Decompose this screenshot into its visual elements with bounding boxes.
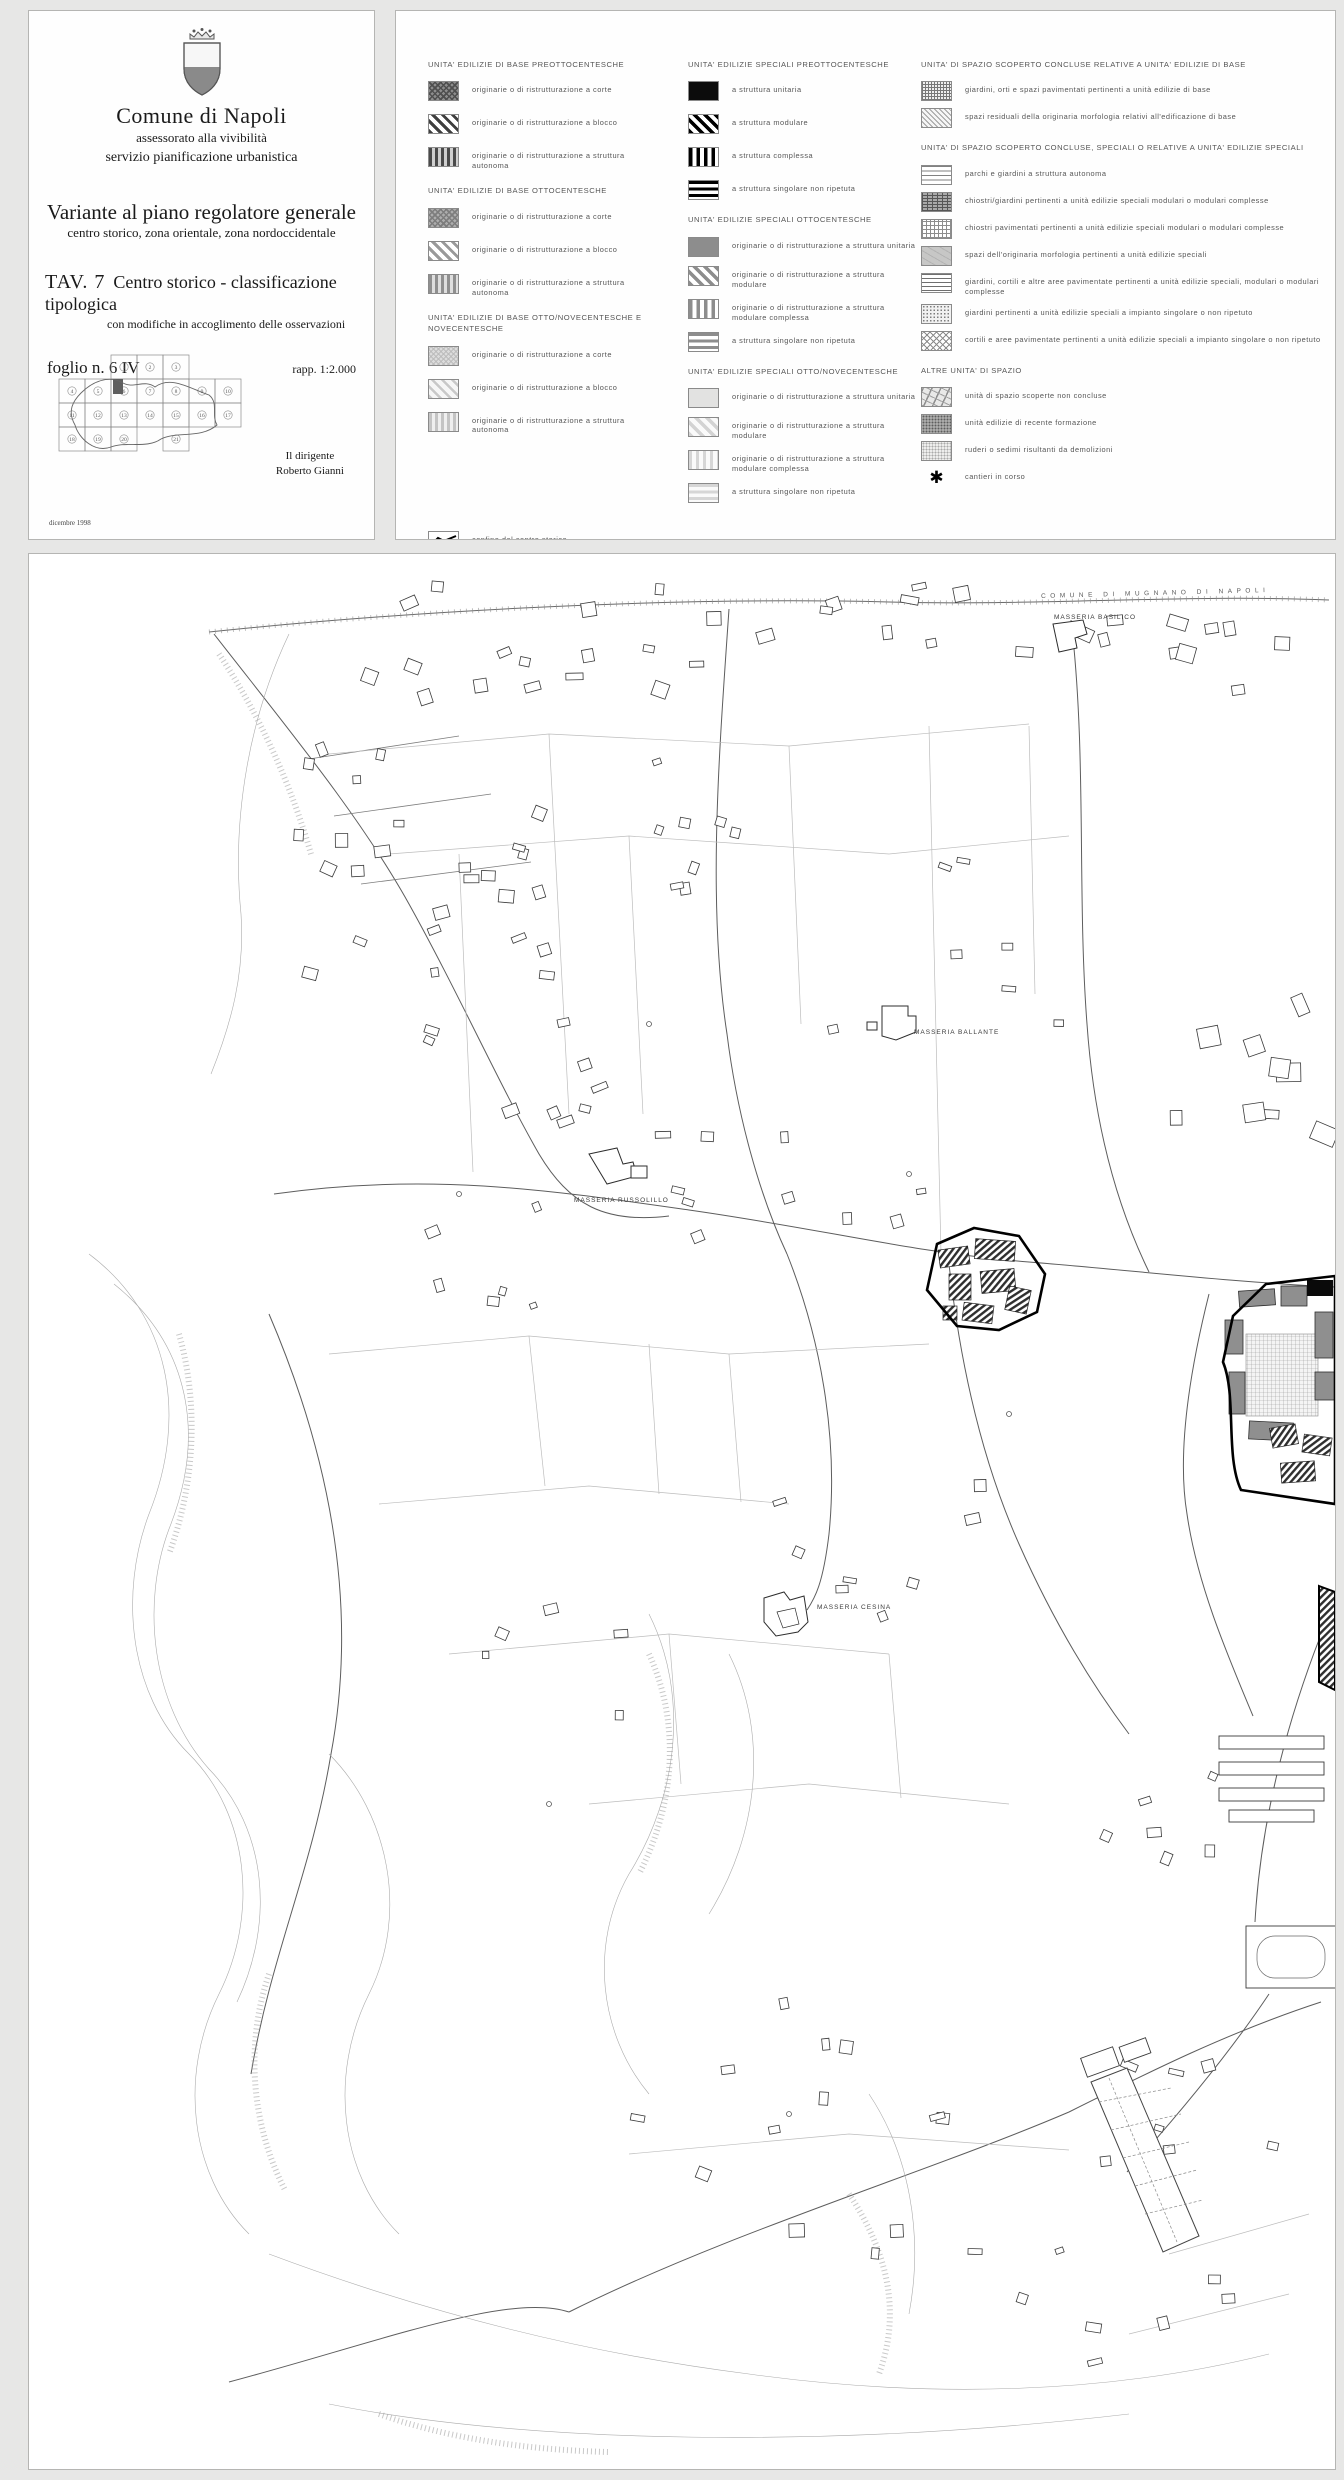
- legend-item-label: cortili e aree pavimentate pertinenti a …: [965, 331, 1321, 345]
- legend-item: cortili e aree pavimentate pertinenti a …: [921, 331, 1321, 351]
- title-block-panel: Comune di Napoli assessorato alla vivibi…: [28, 10, 375, 540]
- svg-text:18: 18: [69, 437, 75, 443]
- roads: [214, 609, 1335, 2382]
- legend-swatch-solid-black: [688, 81, 719, 101]
- legend-swatch-hb-lgray: [688, 483, 719, 503]
- construction-corridor: [1081, 2038, 1203, 2252]
- legend-item-label: cantieri in corso: [965, 468, 1025, 482]
- svg-text:13: 13: [121, 413, 127, 419]
- legend-item: originarie o di ristrutturazione a corte: [428, 208, 663, 228]
- index-sheet-cell-4: 4: [59, 379, 85, 403]
- legend-swatch-hb-black: [688, 180, 719, 200]
- index-sheet-cell-12: 12: [85, 403, 111, 427]
- legend-item: ruderi o sedimi risultanti da demolizion…: [921, 441, 1321, 461]
- index-highlighted-sheet: [113, 379, 123, 394]
- legend-item-label: originarie o di ristrutturazione a strut…: [732, 266, 916, 290]
- legend-swatch-gray-noise: [921, 246, 952, 266]
- barracks-rows: [1219, 1736, 1324, 1822]
- svg-text:3: 3: [175, 365, 178, 371]
- legend-swatch-dots-dense: [921, 414, 952, 434]
- legend-swatch-vb-black: [688, 147, 719, 167]
- signature-role: Il dirigente: [276, 449, 344, 464]
- legend-item-label: a struttura singolare non ripetuta: [732, 483, 855, 497]
- legend-item: a struttura singolare non ripetuta: [688, 332, 916, 352]
- svg-text:12: 12: [95, 413, 101, 419]
- legend-item-label: originarie o di ristrutturazione a blocc…: [472, 114, 617, 128]
- index-sheet-cell-7: 7: [137, 379, 163, 403]
- svg-text:19: 19: [95, 437, 101, 443]
- contour-lines: [89, 634, 1269, 2437]
- legend-item: originarie o di ristrutturazione a blocc…: [428, 241, 663, 261]
- legend-column-open-space-units: UNITA' DI SPAZIO SCOPERTO CONCLUSE RELAT…: [921, 59, 1321, 502]
- signature-block: Il dirigente Roberto Gianni: [276, 449, 344, 479]
- legend-item-label: giardini pertinenti a unità edilizie spe…: [965, 304, 1253, 318]
- legend-group-title: UNITA' DI SPAZIO SCOPERTO CONCLUSE RELAT…: [921, 59, 1321, 70]
- index-sheet-cell-2: 2: [137, 355, 163, 379]
- legend-item: originarie o di ristrutturazione a strut…: [688, 450, 916, 474]
- legend-item-label: originarie o di ristrutturazione a strut…: [732, 450, 916, 474]
- legend-swatch-dg-dark: [428, 114, 459, 134]
- field-boundaries: [329, 724, 1309, 2334]
- legend-item-label: originarie o di ristrutturazione a corte: [472, 208, 612, 222]
- map-label-place: MASSERIA BASILICO: [1054, 614, 1136, 621]
- legend-item-label: unità di spazio scoperte non concluse: [965, 387, 1107, 401]
- legend-group-title: UNITA' EDILIZIE SPECIALI PREOTTOCENTESCH…: [688, 59, 916, 70]
- map-sheet: COMUNE DI MUGNANO DI NAPOLIMASSERIA BASI…: [28, 553, 1336, 2470]
- legend-group: UNITA' DI SPAZIO SCOPERTO CONCLUSE RELAT…: [921, 59, 1321, 128]
- legend-group-title: UNITA' EDILIZIE DI BASE OTTOCENTESCHE: [428, 185, 663, 196]
- svg-text:6: 6: [123, 389, 126, 395]
- legend-swatch-xh-mid: [428, 208, 459, 228]
- legend-item-label: giardini, cortili e altre aree pavimenta…: [965, 273, 1321, 297]
- historic-cluster-central: [927, 1228, 1045, 1330]
- legend-item-label: originarie o di ristrutturazione a strut…: [732, 237, 915, 251]
- svg-text:10: 10: [225, 389, 231, 395]
- sports-field: [1246, 1926, 1335, 1988]
- svg-text:21: 21: [173, 437, 179, 443]
- org-name: Comune di Napoli: [29, 103, 374, 129]
- legend-item-label: originarie o di ristrutturazione a strut…: [732, 299, 916, 323]
- index-sheet-cell-18: 18: [59, 427, 85, 451]
- historic-cluster-right: [1223, 1276, 1335, 1504]
- legend-item-label: parchi e giardini a struttura autonoma: [965, 165, 1106, 179]
- legend-item: originarie o di ristrutturazione a strut…: [688, 237, 916, 257]
- tav-note: con modifiche in accoglimento delle osse…: [107, 317, 374, 332]
- index-sheet-cell-9: 9: [189, 379, 215, 403]
- historic-boundary-swatch: [428, 531, 459, 540]
- sheet-index-map: 123456789101112131415161718192021: [51, 341, 251, 491]
- map-linework: [29, 554, 1335, 2469]
- legend-swatch-hl-open: [921, 165, 952, 185]
- legend-item: a struttura unitaria: [688, 81, 916, 101]
- index-sheet-cell-6: 6: [111, 379, 137, 403]
- legend-group-title: UNITA' DI SPAZIO SCOPERTO CONCLUSE, SPEC…: [921, 142, 1321, 153]
- municipal-boundary: [209, 598, 1329, 632]
- legend-item: unità edilizie di recente formazione: [921, 414, 1321, 434]
- legend-group: UNITA' EDILIZIE SPECIALI PREOTTOCENTESCH…: [688, 59, 916, 200]
- legend-group: confine del centro storico: [428, 531, 663, 540]
- legend-swatch-hl-dense: [921, 273, 952, 293]
- svg-text:8: 8: [175, 389, 178, 395]
- index-sheet-cell-15: 15: [163, 403, 189, 427]
- legend-swatch-dots-lat: [921, 304, 952, 324]
- legend-group: UNITA' DI SPAZIO SCOPERTO CONCLUSE, SPEC…: [921, 142, 1321, 350]
- index-sheet-cell-16: 16: [189, 403, 215, 427]
- legend-item: a struttura modulare: [688, 114, 916, 134]
- legend-item: spazi dell'originaria morfologia pertine…: [921, 246, 1321, 266]
- index-sheet-cell-17: 17: [215, 403, 241, 427]
- legend-group-title: UNITA' EDILIZIE SPECIALI OTTOCENTESCHE: [688, 214, 916, 225]
- legend-swatch-vb-gray: [688, 299, 719, 319]
- legend-swatch-dg-lgray: [688, 417, 719, 437]
- legend-swatch-dg-mid: [428, 241, 459, 261]
- legend-swatch-xh-dark: [428, 81, 459, 101]
- legend-item: originarie o di ristrutturazione a strut…: [688, 299, 916, 323]
- map-label-place: MASSERIA CESINA: [817, 1604, 891, 1611]
- index-sheet-cell-13: 13: [111, 403, 137, 427]
- legend-swatch-solid-gray: [688, 237, 719, 257]
- plan-title: Variante al piano regolatore generale: [29, 200, 374, 225]
- index-sheet-cell-14: 14: [137, 403, 163, 427]
- legend-swatch-dg-black: [688, 114, 719, 134]
- legend-item: a struttura singolare non ripetuta: [688, 180, 916, 200]
- org-department: assessorato alla vivibilità: [29, 130, 374, 146]
- legend-item: confine del centro storico: [428, 531, 663, 540]
- map-label-place: MASSERIA BALLANTE: [914, 1029, 999, 1036]
- legend-item: chiostri/giardini pertinenti a unità edi…: [921, 192, 1321, 212]
- legend-item: originarie o di ristrutturazione a strut…: [428, 412, 663, 436]
- map-scale: rapp. 1:2.000: [292, 362, 356, 377]
- svg-text:2: 2: [149, 365, 152, 371]
- index-sheet-cell-19: 19: [85, 427, 111, 451]
- legend-swatch-grid-mid: [921, 81, 952, 101]
- construction-site-asterisk-icon: ✱: [921, 468, 952, 488]
- legend-item-label: chiostri/giardini pertinenti a unità edi…: [965, 192, 1269, 206]
- legend-group: UNITA' EDILIZIE DI BASE OTTOCENTESCHEori…: [428, 185, 663, 297]
- org-service: servizio pianificazione urbanistica: [29, 150, 374, 166]
- legend-item: originarie o di ristrutturazione a blocc…: [428, 379, 663, 399]
- svg-text:15: 15: [173, 413, 179, 419]
- legend-item-label: giardini, orti e spazi pavimentati perti…: [965, 81, 1211, 95]
- index-sheet-cell-21: 21: [163, 427, 189, 451]
- legend-item-label: originarie o di ristrutturazione a blocc…: [472, 241, 617, 255]
- masseria-buildings: [589, 620, 1087, 1636]
- legend-group-title: UNITA' EDILIZIE DI BASE PREOTTOCENTESCHE: [428, 59, 663, 70]
- legend-swatch-grid-dense: [921, 192, 952, 212]
- plot-date: dicembre 1998: [49, 519, 91, 527]
- historic-fragment-right: [1319, 1586, 1335, 1690]
- svg-text:1: 1: [123, 365, 126, 371]
- plan-subtitle: centro storico, zona orientale, zona nor…: [29, 225, 374, 241]
- legend-item: giardini pertinenti a unità edilizie spe…: [921, 304, 1321, 324]
- svg-text:17: 17: [225, 413, 231, 419]
- legend-column-base-units: UNITA' EDILIZIE DI BASE PREOTTOCENTESCHE…: [428, 59, 663, 540]
- legend-item-label: originarie o di ristrutturazione a blocc…: [472, 379, 617, 393]
- legend-item-label: originarie o di ristrutturazione a corte: [472, 346, 612, 360]
- legend-item: ✱cantieri in corso: [921, 468, 1321, 488]
- legend-group-title: UNITA' EDILIZIE SPECIALI OTTO/NOVECENTES…: [688, 366, 916, 377]
- legend-item: giardini, cortili e altre aree pavimenta…: [921, 273, 1321, 297]
- legend-group: UNITA' EDILIZIE SPECIALI OTTO/NOVECENTES…: [688, 366, 916, 503]
- legend-item-label: spazi residuali della originaria morfolo…: [965, 108, 1236, 122]
- legend-item: originarie o di ristrutturazione a strut…: [428, 274, 663, 298]
- legend-swatch-solid-lgray: [688, 388, 719, 408]
- napoli-coat-of-arms-icon: [177, 27, 227, 101]
- legend-swatch-vb-dark: [428, 147, 459, 167]
- legend-item-label: a struttura unitaria: [732, 81, 802, 95]
- legend-swatch-vb-light: [428, 412, 459, 432]
- map-label-place: MASSERIA RUSSOLILLO: [574, 1197, 669, 1204]
- legend-group-title: UNITA' EDILIZIE DI BASE OTTO/NOVECENTESC…: [428, 312, 663, 335]
- svg-text:7: 7: [149, 389, 152, 395]
- legend-item-label: confine del centro storico: [472, 531, 567, 540]
- tav-line: TAV. 7Centro storico - classificazione t…: [45, 271, 374, 315]
- tav-number: TAV. 7: [45, 271, 105, 293]
- index-sheet-cell-20: 20: [111, 427, 137, 451]
- legend-swatch-dg-gray: [688, 266, 719, 286]
- legend-group-title: ALTRE UNITA' DI SPAZIO: [921, 365, 1321, 376]
- legend-item-label: originarie o di ristrutturazione a strut…: [732, 388, 915, 402]
- legend-group: UNITA' EDILIZIE DI BASE PREOTTOCENTESCHE…: [428, 59, 663, 171]
- legend-item-label: originarie o di ristrutturazione a corte: [472, 81, 612, 95]
- index-coastline: [71, 379, 217, 448]
- legend-item: unità di spazio scoperte non concluse: [921, 387, 1321, 407]
- index-sheet-cell-5: 5: [85, 379, 111, 403]
- svg-text:14: 14: [147, 413, 153, 419]
- legend-item: originarie o di ristrutturazione a corte: [428, 346, 663, 366]
- svg-text:16: 16: [199, 413, 205, 419]
- legend-item-label: unità edilizie di recente formazione: [965, 414, 1097, 428]
- legend-swatch-grid-open: [921, 219, 952, 239]
- legend-item: originarie o di ristrutturazione a strut…: [688, 417, 916, 441]
- legend-item: spazi residuali della originaria morfolo…: [921, 108, 1321, 128]
- index-sheet-cell-10: 10: [215, 379, 241, 403]
- legend-swatch-vb-mid: [428, 274, 459, 294]
- legend-group: UNITA' EDILIZIE DI BASE OTTO/NOVECENTESC…: [428, 312, 663, 436]
- legend-swatch-dg-light: [428, 379, 459, 399]
- legend-column-special-units: UNITA' EDILIZIE SPECIALI PREOTTOCENTESCH…: [688, 59, 916, 517]
- signature-name: Roberto Gianni: [276, 464, 344, 479]
- legend-item: originarie o di ristrutturazione a strut…: [428, 147, 663, 171]
- legend-panel: UNITA' EDILIZIE DI BASE PREOTTOCENTESCHE…: [395, 10, 1336, 540]
- svg-text:20: 20: [121, 437, 127, 443]
- legend-swatch-vb-lgray: [688, 450, 719, 470]
- index-sheet-cell-1: 1: [111, 355, 137, 379]
- legend-item: a struttura singolare non ripetuta: [688, 483, 916, 503]
- legend-swatch-xh-light: [428, 346, 459, 366]
- svg-text:5: 5: [97, 389, 100, 395]
- legend-swatch-dg-fine: [921, 108, 952, 128]
- legend-item-label: originarie o di ristrutturazione a strut…: [472, 147, 657, 171]
- well-symbols: [457, 1022, 1012, 2117]
- legend-item: originarie o di ristrutturazione a strut…: [688, 388, 916, 408]
- legend-item: a struttura complessa: [688, 147, 916, 167]
- legend-item: originarie o di ristrutturazione a strut…: [688, 266, 916, 290]
- legend-swatch-hb-gray: [688, 332, 719, 352]
- scarp-hatching: [169, 654, 890, 2452]
- legend-item: originarie o di ristrutturazione a corte: [428, 81, 663, 101]
- index-sheet-cell-3: 3: [163, 355, 189, 379]
- legend-item-label: a struttura complessa: [732, 147, 813, 161]
- legend-group: ALTRE UNITA' DI SPAZIOunità di spazio sc…: [921, 365, 1321, 488]
- legend-item: parchi e giardini a struttura autonoma: [921, 165, 1321, 185]
- legend-item-label: ruderi o sedimi risultanti da demolizion…: [965, 441, 1113, 455]
- legend-item-label: spazi dell'originaria morfologia pertine…: [965, 246, 1207, 260]
- legend-item: originarie o di ristrutturazione a blocc…: [428, 114, 663, 134]
- legend-item-label: originarie o di ristrutturazione a strut…: [472, 412, 657, 436]
- legend-item-label: a struttura modulare: [732, 114, 808, 128]
- legend-item: giardini, orti e spazi pavimentati perti…: [921, 81, 1321, 101]
- legend-item-label: originarie o di ristrutturazione a strut…: [472, 274, 657, 298]
- legend-item-label: chiostri pavimentati pertinenti a unità …: [965, 219, 1284, 233]
- legend-swatch-map-sketch: [921, 387, 952, 407]
- svg-text:4: 4: [71, 389, 74, 395]
- legend-item: chiostri pavimentati pertinenti a unità …: [921, 219, 1321, 239]
- legend-swatch-dots-light: [921, 441, 952, 461]
- legend-swatch-diamond: [921, 331, 952, 351]
- legend-group: UNITA' EDILIZIE SPECIALI OTTOCENTESCHEor…: [688, 214, 916, 351]
- legend-item-label: originarie o di ristrutturazione a strut…: [732, 417, 916, 441]
- legend-item-label: a struttura singolare non ripetuta: [732, 180, 855, 194]
- legend-item-label: a struttura singolare non ripetuta: [732, 332, 855, 346]
